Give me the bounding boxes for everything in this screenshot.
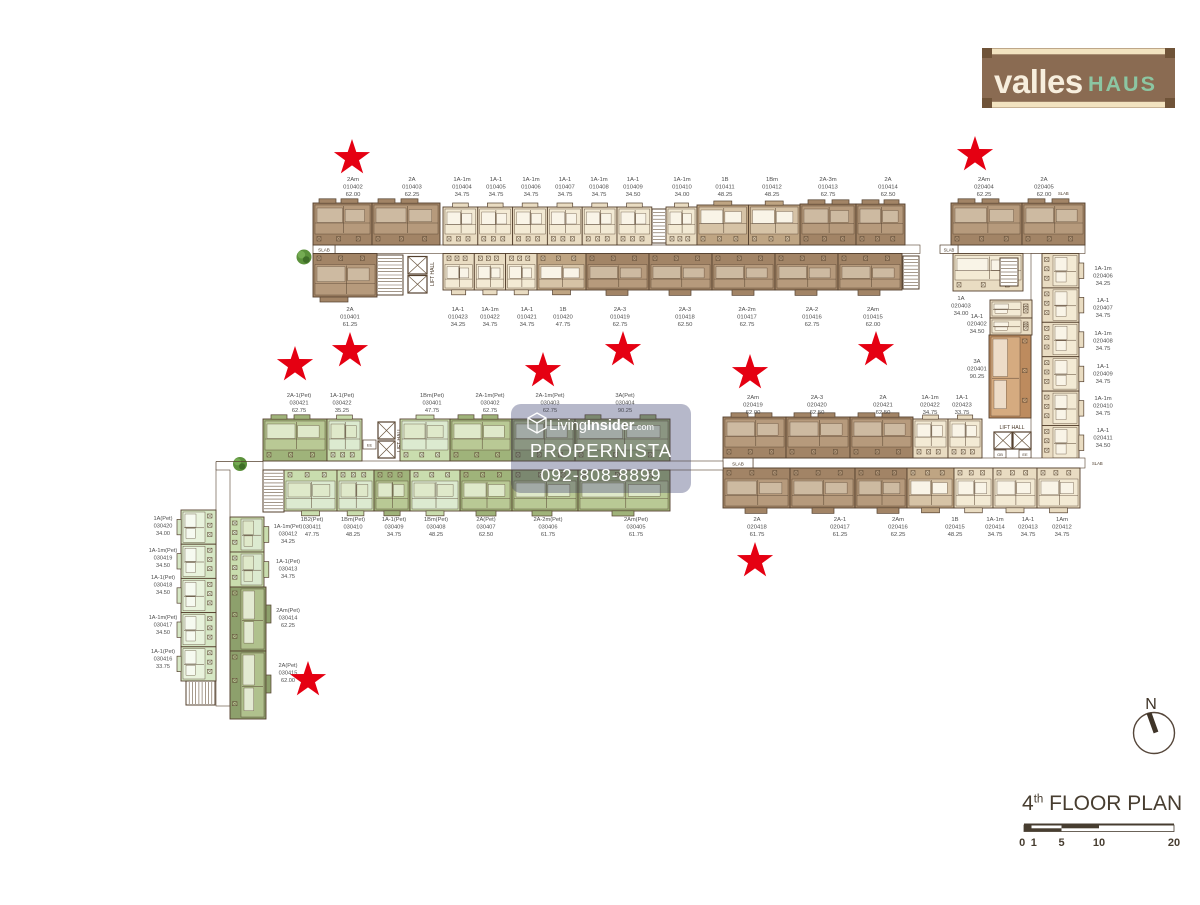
svg-text:10: 10 xyxy=(1093,837,1105,849)
svg-text:092-808-8899: 092-808-8899 xyxy=(541,465,662,485)
svg-text:SLAB: SLAB xyxy=(1058,191,1069,196)
svg-text:SLAB: SLAB xyxy=(1092,461,1103,466)
svg-text:EE: EE xyxy=(367,443,373,448)
svg-text:LIFT HALL: LIFT HALL xyxy=(430,262,436,286)
svg-text:2A(Pet)03040762.50: 2A(Pet)03040762.50 xyxy=(476,517,495,538)
svg-text:2A(Pet)03041562.00: 2A(Pet)03041562.00 xyxy=(279,663,298,684)
svg-text:N: N xyxy=(1145,696,1157,713)
svg-text:SLAB: SLAB xyxy=(944,248,955,253)
svg-text:GB: GB xyxy=(997,452,1003,457)
svg-text:5: 5 xyxy=(1058,837,1064,849)
svg-text:LIFT HALL: LIFT HALL xyxy=(1000,425,1025,431)
svg-text:SLAB: SLAB xyxy=(732,462,744,467)
svg-text:valles: valles xyxy=(994,63,1083,100)
svg-text:4th FLOOR PLAN: 4th FLOOR PLAN xyxy=(1022,792,1182,815)
svg-text:20: 20 xyxy=(1168,837,1180,849)
svg-text:1A-1m02042234.75: 1A-1m02042234.75 xyxy=(920,395,940,416)
svg-text:1A-1m01042234.75: 1A-1m01042234.75 xyxy=(480,307,500,328)
svg-text:2A-2m01041762.75: 2A-2m01041762.75 xyxy=(737,307,757,328)
svg-text:EE: EE xyxy=(1022,452,1028,457)
svg-text:1: 1 xyxy=(1031,837,1037,849)
svg-text:1A(Pet)03042034.00: 1A(Pet)03042034.00 xyxy=(154,516,173,537)
svg-text:PROPERNISTA: PROPERNISTA xyxy=(530,440,672,461)
svg-text:HAUS: HAUS xyxy=(1088,72,1157,96)
svg-text:SLAB: SLAB xyxy=(318,248,330,253)
svg-text:0: 0 xyxy=(1019,837,1025,849)
